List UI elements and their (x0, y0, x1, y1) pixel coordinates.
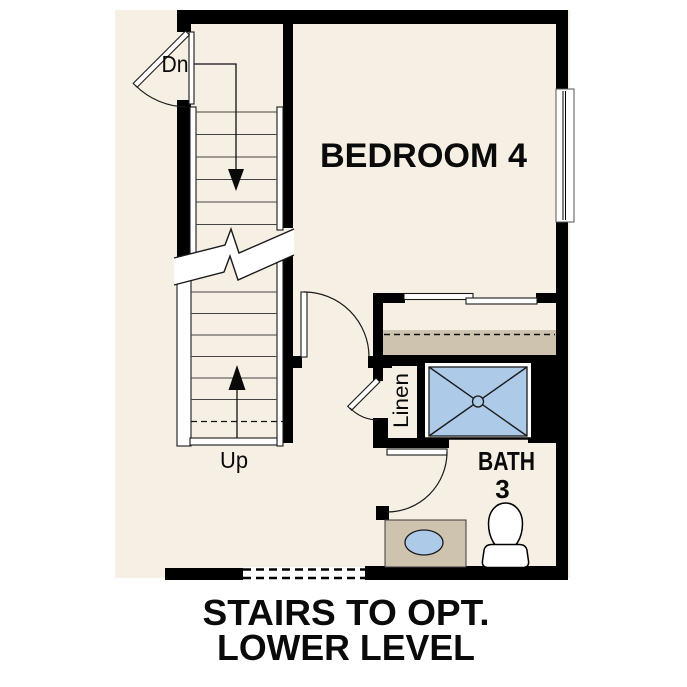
stair-stringer (177, 280, 191, 446)
wall-segment (373, 418, 388, 439)
bypass-door-panel (466, 298, 537, 304)
toilet-tank (482, 545, 528, 568)
floorplan-drawing: BEDROOM 4 BATH 3 Dn Up Linen STAIRS TO O… (0, 0, 687, 687)
door-leaf (387, 449, 447, 455)
wall-segment (283, 10, 293, 228)
stairs-up-label: Up (220, 447, 248, 473)
bedroom-label: BEDROOM 4 (320, 137, 527, 175)
wall-segment (556, 222, 568, 578)
stair-bottom-nosing (190, 438, 277, 445)
wall-segment (365, 566, 568, 580)
wall-segment (556, 10, 568, 89)
wall-segment (177, 10, 568, 24)
wall-segment (373, 366, 383, 381)
bypass-door-panel (404, 294, 473, 300)
wall-segment (373, 293, 405, 303)
wall-segment (376, 506, 389, 520)
shower-fixture (425, 363, 531, 439)
floorplan-page: BEDROOM 4 BATH 3 Dn Up Linen STAIRS TO O… (0, 0, 687, 687)
stair-stringer (190, 107, 196, 257)
wall-segment (283, 252, 293, 443)
stair-stringer (277, 253, 283, 446)
wall-segment (528, 355, 557, 443)
vanity-fixture (385, 520, 466, 567)
optional-wall-dashed (243, 567, 365, 580)
wall-segment (417, 366, 425, 438)
wall-segment (177, 100, 191, 257)
wall-segment (177, 24, 191, 32)
sink-basin (405, 530, 443, 555)
bedroom-closet (383, 330, 556, 355)
wall-segment (165, 568, 243, 580)
window (556, 89, 574, 222)
linen-label: Linen (390, 373, 413, 428)
bath-label: BATH (478, 446, 535, 476)
door-jamb (189, 32, 194, 104)
wall-segment (283, 356, 302, 368)
stairs-down-label: Dn (162, 51, 189, 77)
shower-drain (473, 396, 484, 407)
bath-number-label: 3 (495, 474, 509, 504)
wall-segment (536, 293, 556, 303)
stair-stringer (277, 107, 283, 230)
toilet-bowl (489, 503, 523, 551)
door-leaf (301, 292, 307, 357)
caption-line-2: LOWER LEVEL (217, 627, 475, 668)
